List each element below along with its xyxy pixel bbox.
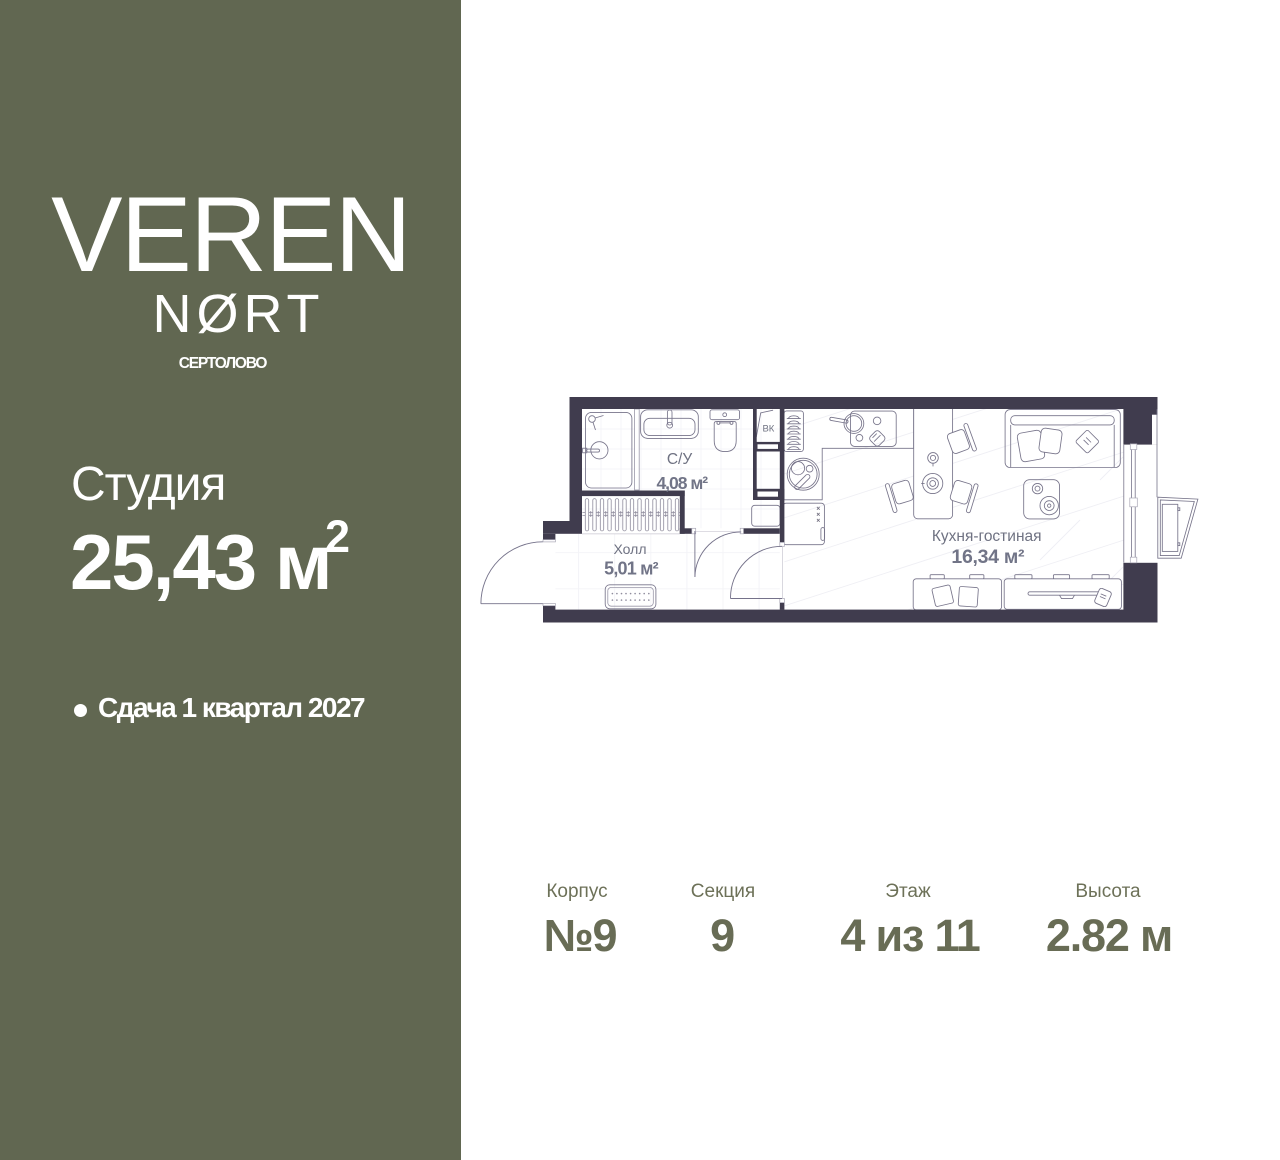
svg-text:С/У: С/У	[667, 451, 693, 468]
svg-text:16,34 м²: 16,34 м²	[951, 546, 1025, 568]
svg-text:4,08 м²: 4,08 м²	[656, 473, 708, 493]
svg-text:5,01 м²: 5,01 м²	[604, 559, 659, 579]
svg-text:Холл: Холл	[614, 541, 647, 557]
svg-text:Кухня-гостиная: Кухня-гостиная	[932, 528, 1042, 545]
svg-text:ВК: ВК	[762, 424, 774, 435]
